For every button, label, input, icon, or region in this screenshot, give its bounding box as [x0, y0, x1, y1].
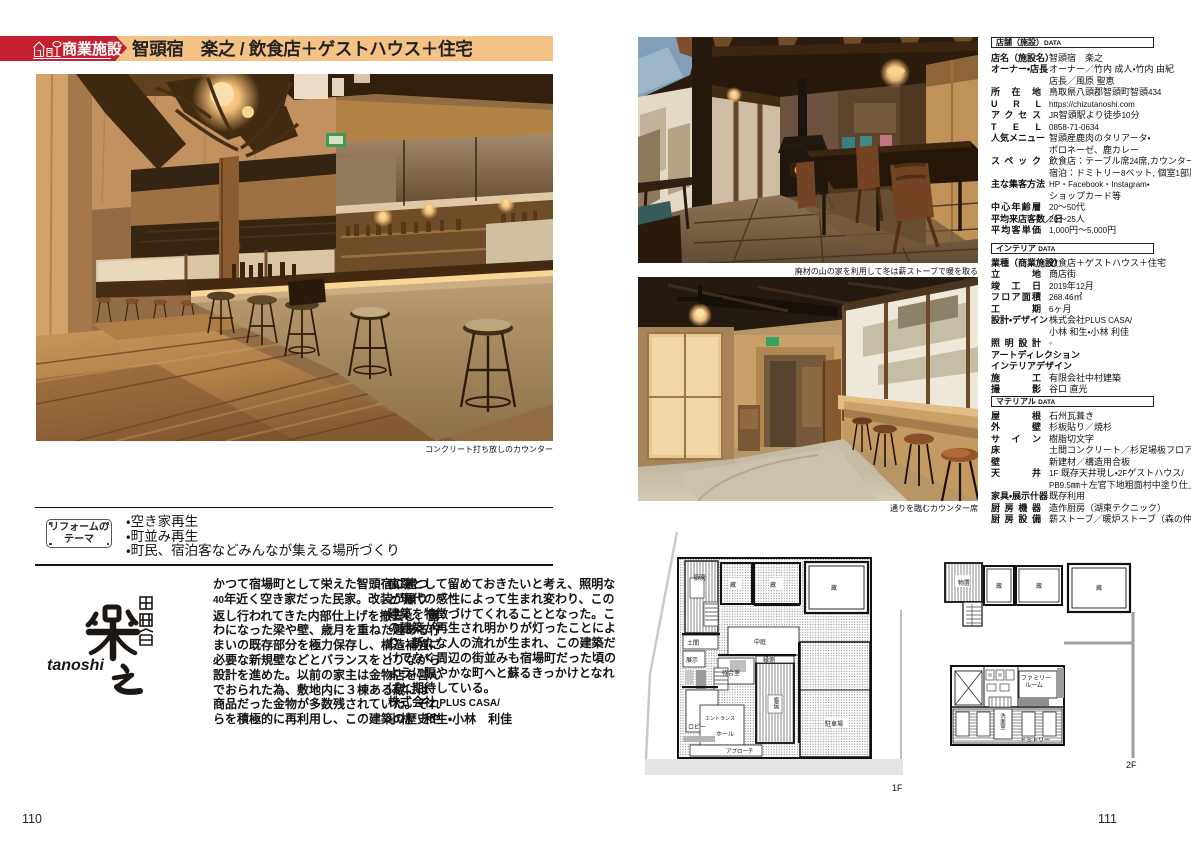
svg-text:ロビー: ロビー [688, 723, 706, 731]
svg-text:蔵: 蔵 [831, 584, 837, 592]
svg-text:洗面室: 洗面室 [999, 712, 1006, 730]
svg-text:ファミリー: ファミリー [1021, 675, 1051, 682]
svg-text:蔵: 蔵 [730, 581, 736, 589]
svg-text:ルーム: ルーム [1025, 682, 1043, 689]
svg-text:展示: 展示 [686, 657, 698, 664]
svg-text:駐車場: 駐車場 [825, 720, 843, 728]
svg-text:蔵: 蔵 [1036, 582, 1042, 590]
svg-text:蔵: 蔵 [770, 581, 776, 589]
svg-text:蔵: 蔵 [1096, 584, 1102, 592]
svg-text:物置: 物置 [958, 579, 970, 587]
svg-text:蔵: 蔵 [996, 582, 1002, 590]
svg-text:厨房: 厨房 [694, 575, 706, 582]
svg-text:客席: 客席 [772, 696, 779, 710]
svg-text:2F: 2F [1126, 760, 1137, 770]
svg-text:ホール: ホール [716, 731, 734, 738]
svg-text:ドミトリー: ドミトリー [1020, 738, 1050, 744]
svg-text:アプローチ: アプローチ [726, 748, 754, 755]
svg-text:待合室: 待合室 [722, 669, 740, 677]
svg-text:縁側: 縁側 [763, 656, 775, 664]
svg-text:中庭: 中庭 [754, 638, 766, 646]
svg-text:tanoshi: tanoshi [47, 657, 104, 674]
svg-text:エントランス: エントランス [705, 716, 735, 722]
svg-text:1F: 1F [892, 783, 903, 793]
svg-text:土間: 土間 [687, 639, 699, 647]
